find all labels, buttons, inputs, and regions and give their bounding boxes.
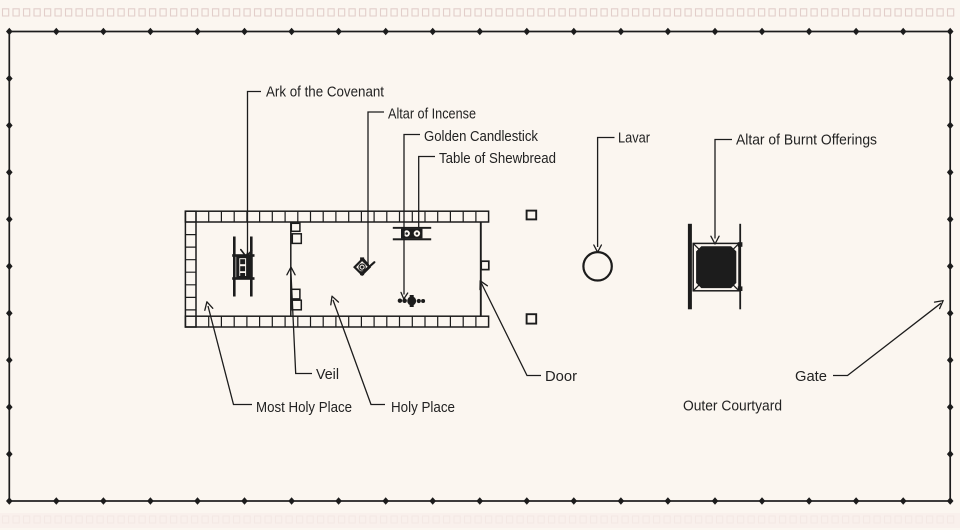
svg-text:Altar of Burnt Offerings: Altar of Burnt Offerings [736,132,877,149]
svg-text:Veil: Veil [316,366,339,383]
svg-text:Table of Shewbread: Table of Shewbread [439,150,556,167]
svg-text:Lavar: Lavar [618,130,650,147]
svg-text:Golden Candlestick: Golden Candlestick [424,128,538,145]
svg-text:Gate: Gate [795,368,827,385]
svg-text:Altar of Incense: Altar of Incense [388,106,476,123]
svg-text:Ark of the Covenant: Ark of the Covenant [266,84,385,101]
svg-text:Most Holy Place: Most Holy Place [256,399,352,416]
svg-text:Door: Door [545,368,577,385]
svg-text:Holy Place: Holy Place [391,399,455,416]
svg-text:Outer Courtyard: Outer Courtyard [683,398,782,415]
